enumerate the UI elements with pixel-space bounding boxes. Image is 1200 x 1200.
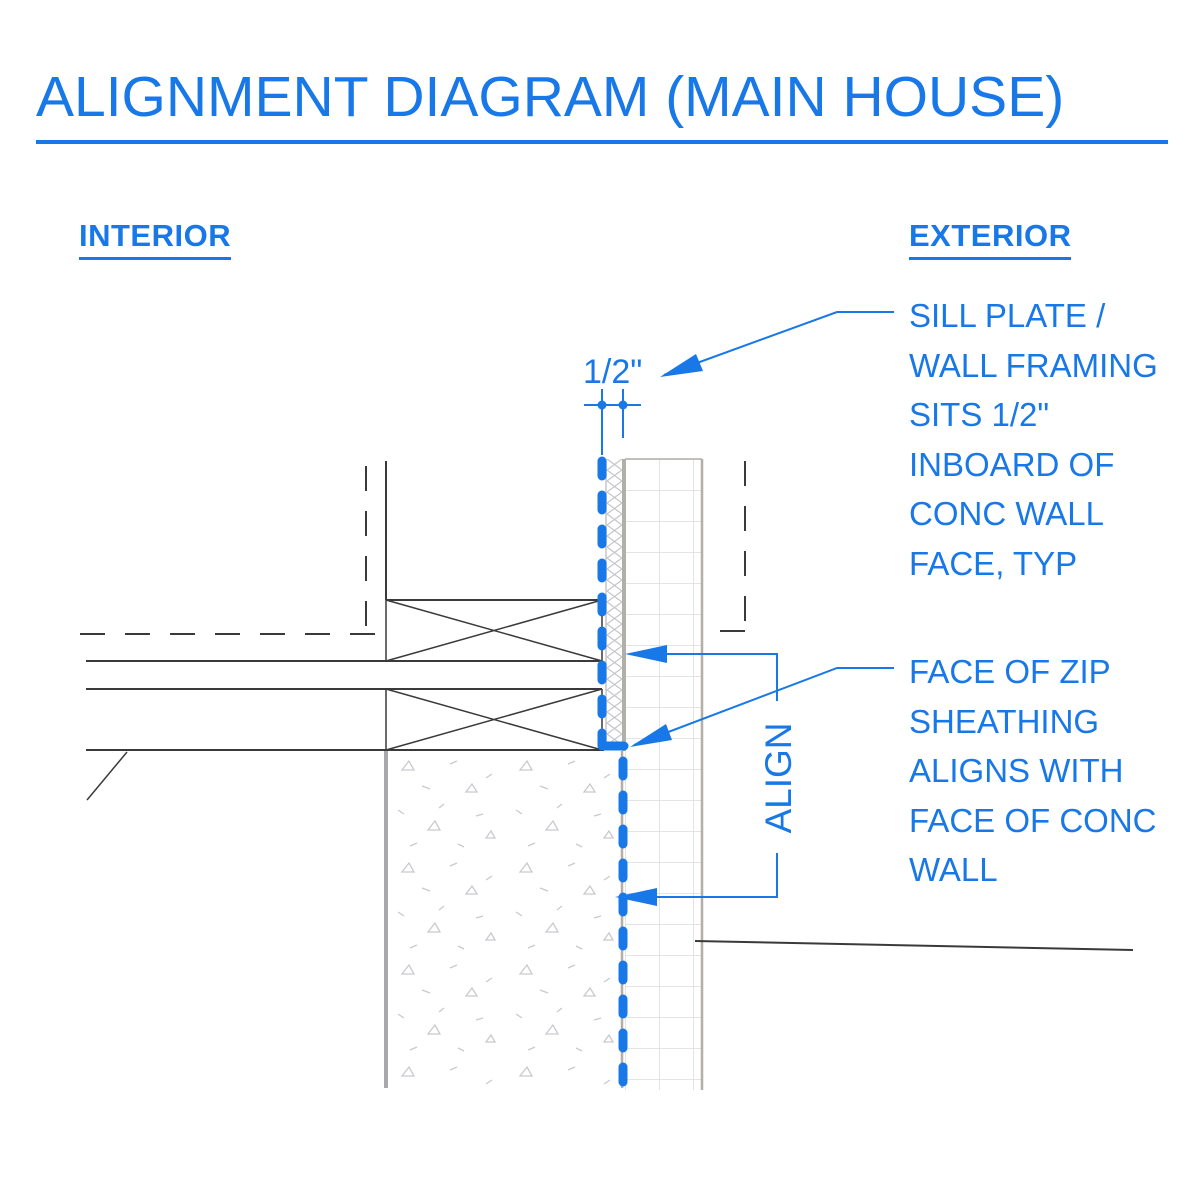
alignment-diagram-page: ALIGNMENT DIAGRAM (MAIN HOUSE) INTERIOR … bbox=[0, 0, 1200, 1200]
detail-drawing bbox=[0, 0, 1200, 1200]
sill-plate-note-line: WALL FRAMING bbox=[909, 341, 1199, 391]
break-line bbox=[87, 752, 127, 800]
sill-plate-note-line: FACE, TYP bbox=[909, 539, 1199, 589]
drainage-grid bbox=[625, 459, 702, 1090]
zip-note-line: ALIGNS WITH bbox=[909, 746, 1199, 796]
zip-note-line: WALL bbox=[909, 845, 1199, 895]
rim-joist-blocking bbox=[386, 600, 602, 661]
sill-plate-note-line: CONC WALL bbox=[909, 489, 1199, 539]
sill-plate-note: SILL PLATE / WALL FRAMING SITS 1/2" INBO… bbox=[909, 291, 1199, 588]
leader-sill-plate bbox=[660, 312, 894, 377]
zip-note-line: SHEATHING bbox=[909, 697, 1199, 747]
zip-note: FACE OF ZIP SHEATHING ALIGNS WITH FACE O… bbox=[909, 647, 1199, 895]
sheathing-strip bbox=[606, 459, 623, 751]
sill-blocking bbox=[386, 689, 602, 750]
dimension-graphics bbox=[584, 389, 641, 455]
dimension-text: 1/2" bbox=[583, 353, 642, 392]
grade-line bbox=[695, 941, 1133, 950]
sill-plate-note-line: INBOARD OF bbox=[909, 440, 1199, 490]
concrete-wall bbox=[386, 751, 622, 1088]
sill-plate-note-line: SITS 1/2" bbox=[909, 390, 1199, 440]
align-label: ALIGN bbox=[758, 698, 798, 858]
sill-plate-note-line: SILL PLATE / bbox=[909, 291, 1199, 341]
zip-note-line: FACE OF CONC bbox=[909, 796, 1199, 846]
floor-lines bbox=[86, 661, 604, 750]
zip-note-line: FACE OF ZIP bbox=[909, 647, 1199, 697]
